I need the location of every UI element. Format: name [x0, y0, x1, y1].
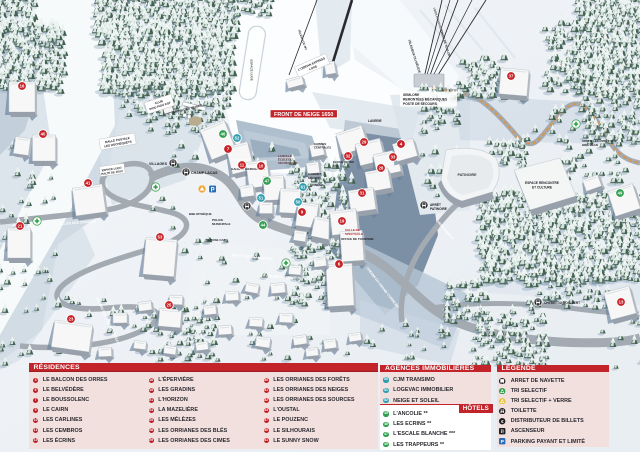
svg-text:47: 47 [265, 179, 270, 184]
svg-text:49: 49 [618, 191, 623, 196]
svg-text:19: 19 [340, 219, 345, 224]
svg-text:OFFICE DE TOURISME: OFFICE DE TOURISME [341, 237, 374, 241]
svg-text:MÉDICAL: MÉDICAL [308, 175, 322, 180]
svg-text:23: 23 [69, 317, 74, 322]
svg-text:ESPACE LUGE: ESPACE LUGE [249, 60, 253, 81]
svg-text:6: 6 [338, 262, 341, 267]
svg-text:9: 9 [301, 210, 304, 215]
svg-text:37: 37 [509, 74, 514, 79]
svg-text:25: 25 [167, 303, 172, 308]
svg-text:VILLAGES: VILLAGES [149, 162, 168, 166]
svg-text:CINÉMA: CINÉMA [312, 182, 325, 187]
svg-text:53: 53 [158, 235, 163, 240]
svg-text:10: 10 [259, 164, 264, 169]
svg-text:DÉPOSE CAR: DÉPOSE CAR [206, 237, 227, 242]
svg-text:40: 40 [41, 132, 46, 137]
svg-text:33: 33 [391, 155, 396, 160]
svg-text:ET CULTURE: ET CULTURE [532, 186, 552, 190]
svg-text:FRONT DE NEIGE 1650: FRONT DE NEIGE 1650 [274, 112, 333, 118]
svg-text:LAVERIE: LAVERIE [368, 119, 382, 123]
svg-text:44: 44 [261, 223, 266, 228]
svg-text:28: 28 [379, 166, 384, 171]
svg-text:11: 11 [240, 163, 245, 168]
svg-text:50: 50 [296, 200, 301, 205]
svg-text:13: 13 [619, 300, 624, 305]
svg-text:ESPACE RENCONTRE: ESPACE RENCONTRE [525, 181, 559, 185]
svg-text:ESF: ESF [333, 164, 339, 168]
svg-text:REMONTÉES MÉCANIQUES: REMONTÉES MÉCANIQUES [403, 97, 448, 102]
svg-text:31: 31 [360, 191, 365, 196]
svg-text:51: 51 [259, 196, 264, 201]
svg-text:BIBLIOTHÈQUE: BIBLIOTHÈQUE [189, 211, 212, 216]
svg-text:BOIS MÉAN: BOIS MÉAN [582, 142, 598, 147]
svg-text:P: P [211, 188, 215, 194]
svg-text:CENTRALES: CENTRALES [314, 146, 331, 150]
svg-text:POSTE DE SECOURS: POSTE DE SECOURS [403, 102, 438, 106]
svg-text:52: 52 [235, 136, 240, 141]
svg-text:7: 7 [227, 147, 230, 152]
svg-text:PATINOIRE: PATINOIRE [457, 173, 477, 177]
svg-text:CHEMIN DU BOIS VERT: CHEMIN DU BOIS VERT [544, 301, 580, 305]
svg-text:46: 46 [221, 132, 226, 137]
svg-text:29: 29 [362, 140, 367, 145]
svg-text:SEMLORE: SEMLORE [403, 93, 420, 97]
svg-text:61: 61 [301, 185, 306, 190]
svg-text:4: 4 [400, 142, 403, 147]
svg-text:21: 21 [18, 224, 23, 229]
svg-text:16: 16 [20, 84, 25, 89]
svg-text:41: 41 [86, 181, 91, 186]
svg-text:PATINOIRE: PATINOIRE [430, 207, 447, 211]
svg-text:MUNICIPALE: MUNICIPALE [212, 222, 230, 226]
svg-text:32: 32 [346, 154, 351, 159]
svg-text:SPECTACLE: SPECTACLE [345, 232, 363, 236]
svg-text:SKI FRANÇAIS: SKI FRANÇAIS [278, 161, 298, 165]
svg-text:CHAMP LACAS: CHAMP LACAS [191, 171, 218, 175]
